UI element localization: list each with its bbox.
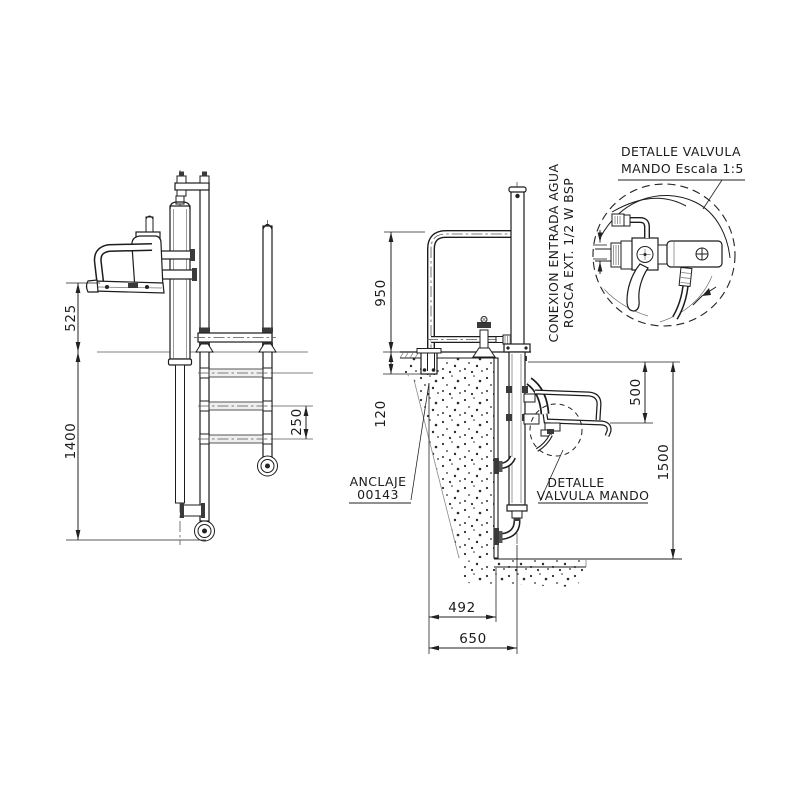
dim-side-seat-drop: 500 [628,378,644,406]
seat-front [87,232,165,293]
water-inlet-line1: CONEXION ENTRADA AGUA [546,164,561,343]
seat-side [524,381,609,456]
deck-clamp-bar [194,328,276,353]
anchor-callout: ANCLAJE 00143 [349,383,429,503]
anchor-label-line2: 00143 [357,487,399,502]
valve-assembly [595,214,722,318]
water-inlet-callout: CONEXION ENTRADA AGUA ROSCA EXT. 1/2 W B… [546,164,607,343]
footrest [87,280,99,292]
dim-side-rail-height: 950 [373,279,389,307]
mounting-plate [667,241,722,267]
dim-front-rung-spacing: 250 [289,408,305,436]
dim-side-axis-offset: 650 [459,631,487,647]
rail-fitting [496,335,512,344]
valve-lever [627,264,648,311]
dim-front-seat-height: 525 [63,304,79,332]
valve-ref-line2: VALVULA MANDO [537,488,650,503]
valve-detail-view: DETALLE VALVULA MANDO Escala 1:5 [546,144,745,342]
dim-front-submerged-depth: 1400 [63,423,79,460]
dim-side-anchor-depth: 120 [373,400,389,428]
handrail-arch [417,234,518,375]
front-view: 525 1400 250 [63,170,313,545]
drawing-sheet: 525 1400 250 [0,0,800,800]
valve-detail-callout: DETALLE VALVULA MANDO [537,450,650,503]
detail-title-line1: DETALLE VALVULA [621,144,741,159]
water-inlet-line2: ROSCA EXT. 1/2 W BSP [561,178,576,328]
dim-side-total-depth: 1500 [656,444,672,481]
detail-title-line2: MANDO Escala 1:5 [621,161,744,176]
dim-side-wall-offset: 492 [448,600,476,616]
pool-lift-drawing: 525 1400 250 [0,0,800,800]
ladder-front [194,183,278,541]
